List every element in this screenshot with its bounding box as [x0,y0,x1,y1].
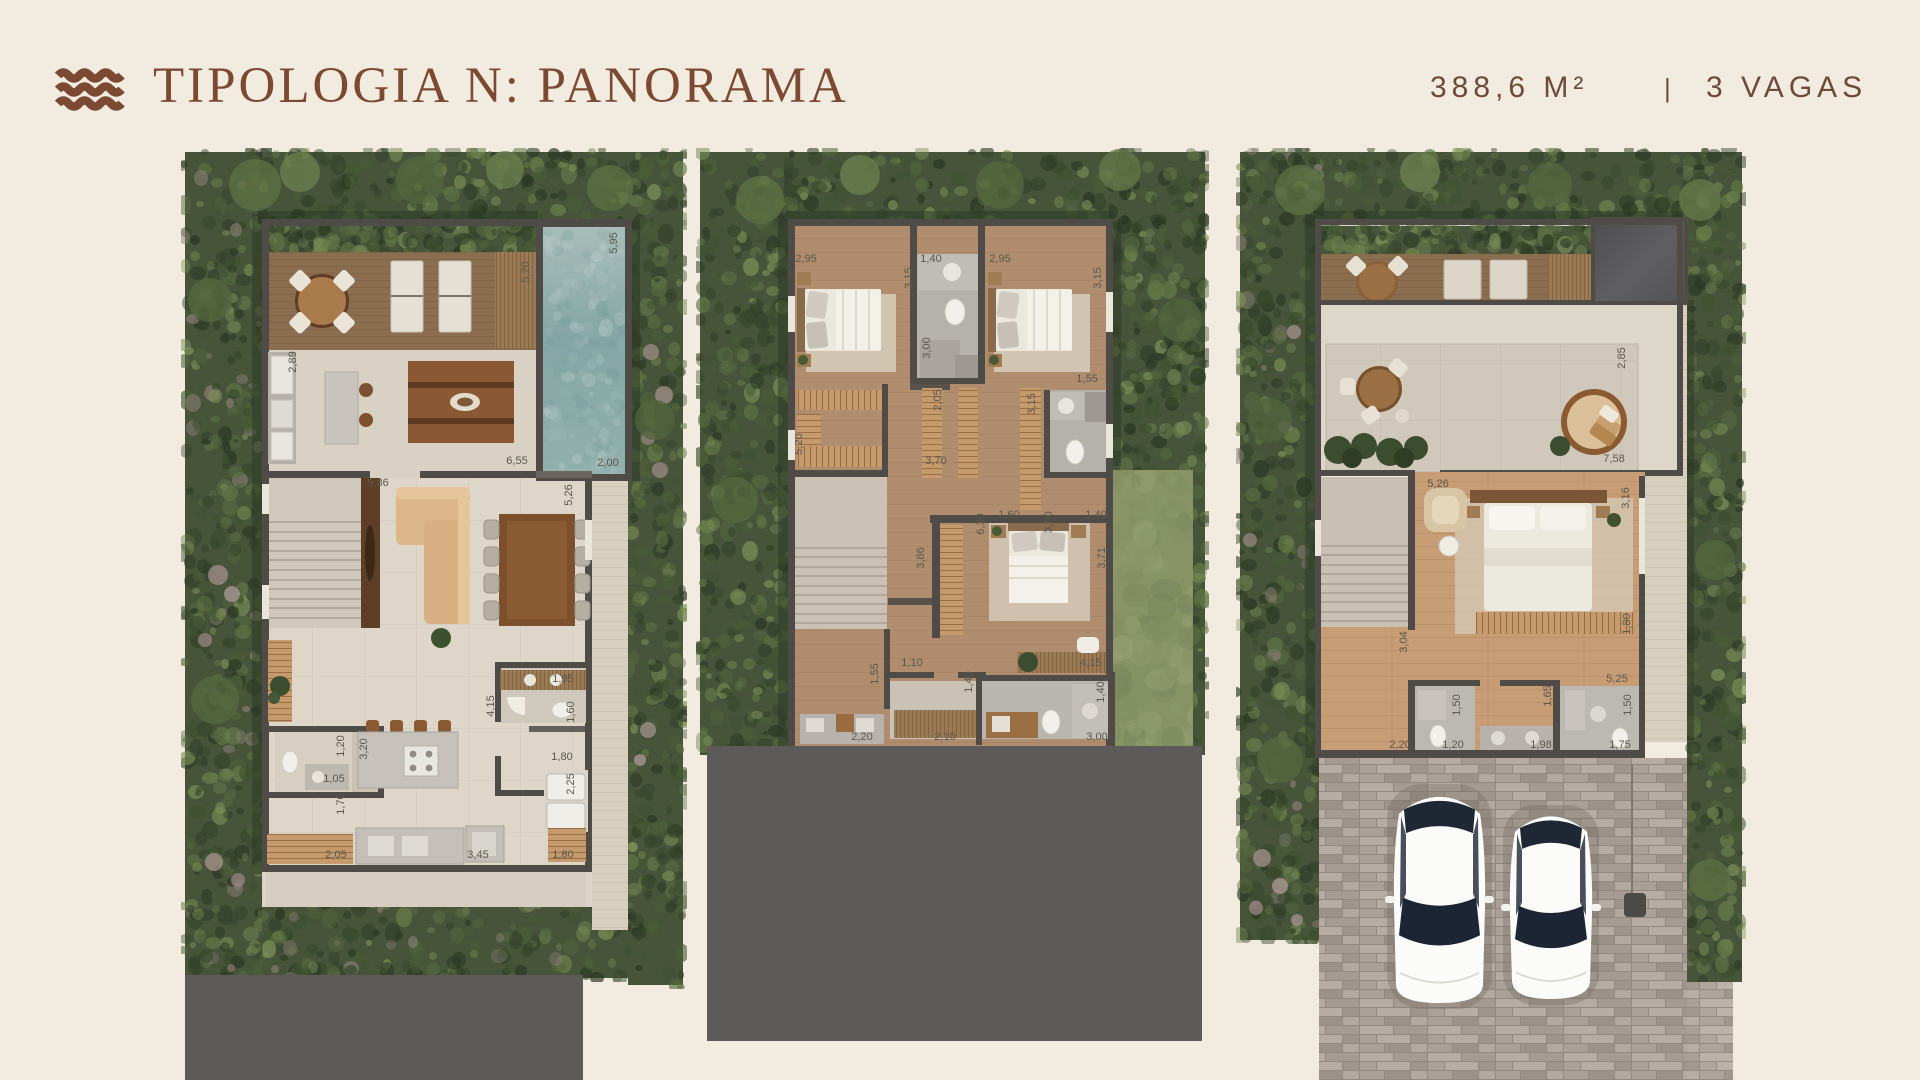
svg-text:5,25: 5,25 [1606,673,1627,685]
svg-text:2,25: 2,25 [565,773,577,794]
svg-text:4,15: 4,15 [1080,657,1101,669]
svg-text:1,40: 1,40 [1095,681,1107,702]
svg-text:3,71: 3,71 [1096,547,1108,568]
svg-text:7,58: 7,58 [1603,453,1624,465]
svg-text:1,40: 1,40 [1085,509,1106,521]
svg-text:3,00: 3,00 [1086,731,1107,743]
svg-text:4,15: 4,15 [485,695,497,716]
svg-text:1,75: 1,75 [1609,739,1630,751]
svg-text:3,20: 3,20 [358,738,370,759]
svg-text:388,6 M²: 388,6 M² [1430,71,1588,104]
svg-text:1,55: 1,55 [869,663,881,684]
svg-text:1,55: 1,55 [1076,373,1097,385]
svg-text:5,26: 5,26 [1427,478,1448,490]
svg-text:3,00: 3,00 [921,337,933,358]
svg-text:1,40: 1,40 [963,671,975,692]
svg-text:1,60: 1,60 [998,509,1019,521]
svg-text:5,95: 5,95 [608,232,620,253]
svg-text:|: | [1664,73,1671,103]
svg-text:3,04: 3,04 [1398,631,1410,652]
svg-text:1,95: 1,95 [552,673,573,685]
svg-text:3 VAGAS: 3 VAGAS [1706,71,1867,104]
svg-text:2,05: 2,05 [325,849,346,861]
svg-text:5,20: 5,20 [520,261,532,282]
svg-text:3,86: 3,86 [915,547,927,568]
svg-text:2,20: 2,20 [851,731,872,743]
svg-text:2,10: 2,10 [934,731,955,743]
svg-text:2,85: 2,85 [1616,347,1628,368]
svg-text:1,20: 1,20 [335,735,347,756]
svg-text:3,70: 3,70 [925,455,946,467]
svg-text:3,16: 3,16 [1620,487,1632,508]
svg-text:6,55: 6,55 [506,455,527,467]
svg-text:3,45: 3,45 [467,849,488,861]
svg-text:9,86: 9,86 [367,477,388,489]
svg-text:2,05: 2,05 [932,389,944,410]
svg-text:1,80: 1,80 [551,751,572,763]
svg-text:2,20: 2,20 [1389,739,1410,751]
svg-text:1,98: 1,98 [1530,739,1551,751]
svg-text:1,40: 1,40 [920,253,941,265]
svg-text:1,80: 1,80 [552,849,573,861]
svg-text:1,60: 1,60 [565,701,577,722]
svg-text:1,05: 1,05 [323,773,344,785]
svg-text:3,15: 3,15 [1092,267,1104,288]
svg-text:1,80: 1,80 [1621,613,1633,634]
svg-text:6,30: 6,30 [975,513,987,534]
svg-text:1,20: 1,20 [1442,739,1463,751]
svg-text:2,95: 2,95 [989,253,1010,265]
svg-text:3,15: 3,15 [1026,393,1038,414]
svg-text:1,10: 1,10 [901,657,922,669]
svg-text:3,15: 3,15 [903,267,915,288]
svg-text:2,89: 2,89 [287,351,299,372]
svg-text:2,00: 2,00 [597,457,618,469]
svg-text:5,26: 5,26 [563,484,575,505]
svg-text:3,00: 3,00 [1043,511,1055,532]
svg-text:1,70: 1,70 [335,793,347,814]
svg-text:1,50: 1,50 [1451,694,1463,715]
svg-text:TIPOLOGIA N: PANORAMA: TIPOLOGIA N: PANORAMA [153,58,849,114]
svg-text:1,65: 1,65 [1542,685,1554,706]
svg-text:1,50: 1,50 [1622,694,1634,715]
svg-text:2,95: 2,95 [795,253,816,265]
